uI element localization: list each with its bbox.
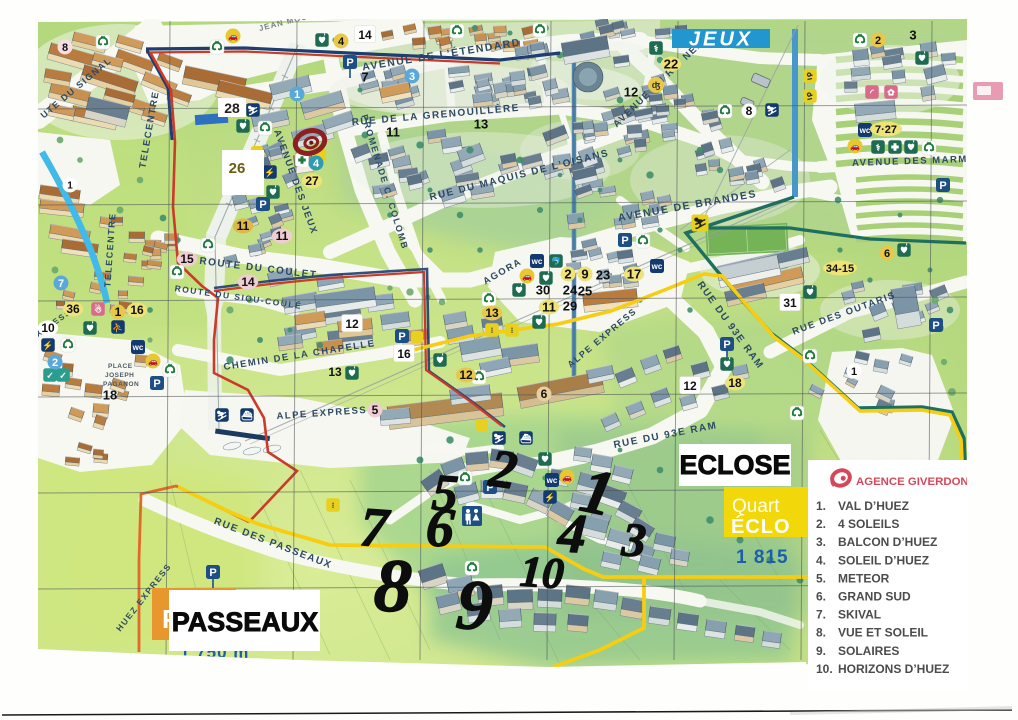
svg-text:⛷: ⛷ xyxy=(247,104,258,115)
svg-text:7·27: 7·27 xyxy=(875,124,897,136)
svg-text:wc: wc xyxy=(546,476,558,485)
svg-text:11: 11 xyxy=(542,300,556,315)
svg-text:SOLEIL D’HUEZ: SOLEIL D’HUEZ xyxy=(838,553,929,567)
svg-text:16: 16 xyxy=(130,303,144,317)
svg-text:11: 11 xyxy=(237,219,250,233)
svg-text:9: 9 xyxy=(581,267,588,282)
svg-text:🚗: 🚗 xyxy=(522,272,532,281)
svg-text:13: 13 xyxy=(485,306,499,320)
svg-text:⚡: ⚡ xyxy=(544,491,555,503)
svg-text:JOSEPH: JOSEPH xyxy=(105,372,134,379)
svg-text:PLACE: PLACE xyxy=(108,363,133,370)
svg-text:Quart: Quart xyxy=(732,496,780,517)
svg-text:8: 8 xyxy=(746,104,753,118)
svg-text:3.: 3. xyxy=(816,535,826,549)
svg-text:wc: wc xyxy=(651,262,663,271)
svg-text:10: 10 xyxy=(41,321,55,335)
svg-text:6: 6 xyxy=(884,248,890,260)
svg-text:30: 30 xyxy=(536,283,550,298)
svg-text:SKIVAL: SKIVAL xyxy=(838,608,881,622)
svg-text:6: 6 xyxy=(541,387,548,401)
svg-text:wc: wc xyxy=(531,257,543,266)
svg-text:12: 12 xyxy=(624,85,638,100)
svg-text:ÉCLO: ÉCLO xyxy=(731,515,791,538)
svg-text:2: 2 xyxy=(52,357,58,369)
svg-text:BALCON D’HUEZ: BALCON D’HUEZ xyxy=(838,535,937,549)
svg-text:3: 3 xyxy=(409,71,415,83)
svg-text:🐬: 🐬 xyxy=(551,256,561,266)
svg-text:P: P xyxy=(723,339,730,351)
svg-text:🚗: 🚗 xyxy=(148,357,158,366)
svg-text:P: P xyxy=(398,331,405,343)
svg-text:⛷: ⛷ xyxy=(693,217,707,230)
svg-text:✓: ✓ xyxy=(59,370,67,380)
svg-text:P: P xyxy=(153,378,160,390)
svg-text:2.: 2. xyxy=(816,517,826,531)
svg-text:2: 2 xyxy=(875,35,881,47)
svg-text:⁝: ⁝ xyxy=(332,501,335,510)
svg-text:13: 13 xyxy=(328,365,342,379)
svg-text:24: 24 xyxy=(563,283,578,298)
svg-text:12: 12 xyxy=(345,317,359,331)
svg-text:7.: 7. xyxy=(816,608,826,622)
svg-text:P: P xyxy=(932,320,939,332)
svg-text:P: P xyxy=(209,567,216,579)
svg-text:⛷: ⛷ xyxy=(766,104,777,115)
svg-text:11: 11 xyxy=(276,229,289,243)
svg-text:6: 6 xyxy=(424,496,456,560)
svg-text:✓: ✓ xyxy=(46,370,54,380)
svg-text:1: 1 xyxy=(294,89,300,101)
svg-text:8: 8 xyxy=(372,543,413,628)
svg-text:11: 11 xyxy=(386,125,400,140)
svg-text:7: 7 xyxy=(361,70,368,85)
svg-text:26: 26 xyxy=(229,160,246,177)
svg-text:⚡: ⚡ xyxy=(42,339,53,351)
svg-text:⁝: ⁝ xyxy=(491,326,494,335)
svg-text:ʤ: ʤ xyxy=(652,80,661,90)
svg-text:⛷: ⛷ xyxy=(216,409,227,420)
svg-text:31: 31 xyxy=(783,296,797,310)
svg-text:METEOR: METEOR xyxy=(838,571,890,585)
svg-text:⁝: ⁝ xyxy=(511,326,514,335)
svg-text:15: 15 xyxy=(180,252,194,266)
svg-text:13: 13 xyxy=(474,117,488,132)
svg-text:☃: ☃ xyxy=(94,303,102,314)
svg-text:P: P xyxy=(346,57,353,69)
svg-text:1 815: 1 815 xyxy=(736,547,789,568)
svg-text:2: 2 xyxy=(564,267,571,282)
svg-text:⛴: ⛴ xyxy=(241,410,253,420)
svg-text:4.: 4. xyxy=(816,553,826,567)
svg-text:9: 9 xyxy=(454,564,495,646)
svg-text:5.: 5. xyxy=(816,571,826,585)
svg-text:3: 3 xyxy=(909,28,916,43)
svg-text:1: 1 xyxy=(115,305,122,319)
svg-text:8: 8 xyxy=(62,42,68,54)
svg-text:🚗: 🚗 xyxy=(850,142,860,151)
svg-text:⚡: ⚡ xyxy=(264,166,275,178)
svg-text:⚕: ⚕ xyxy=(654,43,659,53)
svg-text:10: 10 xyxy=(518,547,565,599)
svg-text:3: 3 xyxy=(619,513,648,568)
svg-text:23: 23 xyxy=(596,268,610,283)
svg-text:10.: 10. xyxy=(816,662,833,676)
svg-text:5: 5 xyxy=(372,403,379,417)
svg-text:JEUX: JEUX xyxy=(689,29,753,51)
svg-text:wc: wc xyxy=(859,126,871,135)
svg-text:AGENCE GIVERDON: AGENCE GIVERDON xyxy=(856,476,969,488)
svg-text:VAL D’HUEZ: VAL D’HUEZ xyxy=(838,499,909,513)
svg-text:8.: 8. xyxy=(816,626,826,640)
svg-text:29: 29 xyxy=(563,299,577,314)
svg-text:⛹: ⛹ xyxy=(112,321,123,332)
svg-text:25: 25 xyxy=(578,284,592,299)
svg-text:wc: wc xyxy=(132,343,144,352)
svg-text:28: 28 xyxy=(224,100,240,116)
svg-text:🚗: 🚗 xyxy=(228,32,238,41)
svg-text:✿: ✿ xyxy=(887,87,895,97)
svg-text:⚕: ⚕ xyxy=(876,142,881,152)
svg-text:9.: 9. xyxy=(816,644,826,658)
svg-text:P: P xyxy=(259,199,266,211)
svg-text:36: 36 xyxy=(66,302,80,316)
svg-text:GRAND SUD: GRAND SUD xyxy=(838,590,911,604)
svg-text:16: 16 xyxy=(397,347,411,361)
svg-text:VUE ET SOLEIL: VUE ET SOLEIL xyxy=(838,626,928,640)
svg-text:◜: ◜ xyxy=(869,87,874,97)
svg-text:1: 1 xyxy=(851,366,857,378)
svg-text:SOLAIRES: SOLAIRES xyxy=(838,644,899,658)
svg-text:14: 14 xyxy=(358,28,372,42)
svg-text:4: 4 xyxy=(313,158,320,170)
svg-text:PASSEAUX: PASSEAUX xyxy=(172,607,319,637)
svg-text:27: 27 xyxy=(305,174,319,188)
svg-text:🚗: 🚗 xyxy=(562,473,572,482)
svg-text:ECLOSE: ECLOSE xyxy=(679,450,790,480)
svg-text:1: 1 xyxy=(67,181,73,192)
svg-text:4: 4 xyxy=(338,36,345,48)
svg-text:14: 14 xyxy=(241,275,255,289)
svg-text:6.: 6. xyxy=(816,590,826,604)
svg-text:12: 12 xyxy=(683,379,697,393)
svg-text:22: 22 xyxy=(664,57,678,72)
svg-text:18: 18 xyxy=(728,376,742,390)
svg-text:P: P xyxy=(621,235,628,247)
svg-text:P: P xyxy=(939,180,946,192)
svg-text:34-15: 34-15 xyxy=(826,263,854,275)
svg-text:18: 18 xyxy=(103,388,117,403)
svg-text:7: 7 xyxy=(58,278,64,290)
svg-text:1.: 1. xyxy=(816,499,826,513)
svg-text:4 SOLEILS: 4 SOLEILS xyxy=(838,517,899,531)
svg-text:⛴: ⛴ xyxy=(520,433,532,443)
svg-text:17: 17 xyxy=(627,267,641,282)
svg-text:12: 12 xyxy=(459,368,473,382)
svg-text:HORIZONS D’HUEZ: HORIZONS D’HUEZ xyxy=(838,662,949,676)
